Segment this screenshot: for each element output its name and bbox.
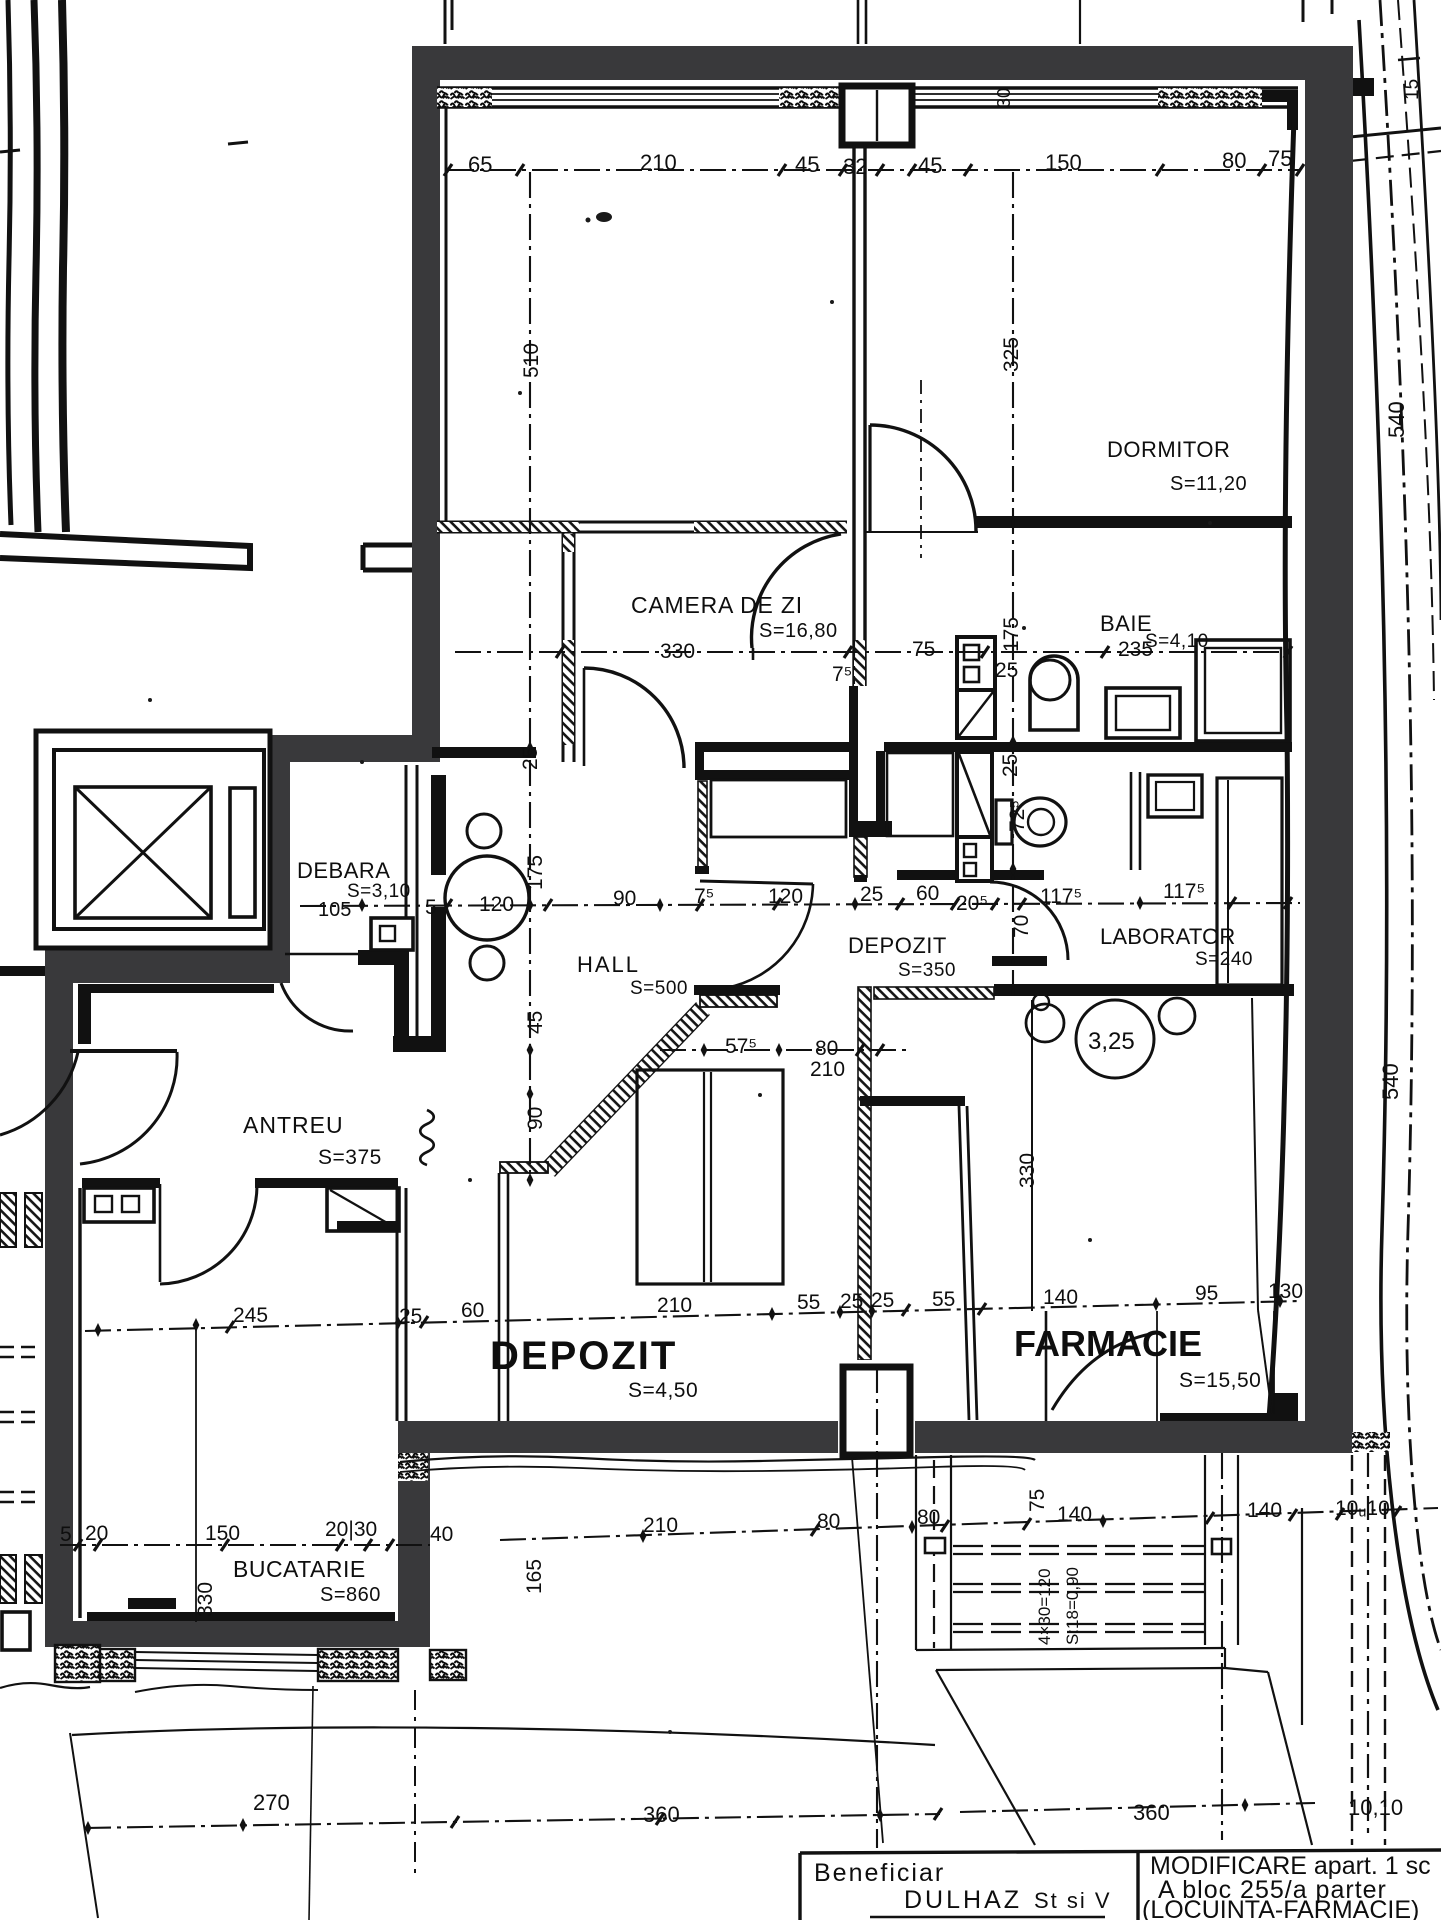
svg-text:S:18=0,90: S:18=0,90 [1063, 1567, 1082, 1645]
svg-text:40: 40 [430, 1523, 453, 1546]
svg-text:S=4,50: S=4,50 [628, 1379, 698, 1402]
svg-text:ANTREU: ANTREU [243, 1112, 344, 1138]
svg-text:25: 25 [860, 883, 883, 906]
svg-text:DEBARA: DEBARA [297, 858, 390, 883]
svg-text:DEPOZIT: DEPOZIT [490, 1334, 677, 1378]
svg-text:65: 65 [468, 152, 492, 177]
svg-text:540: 540 [1378, 1063, 1403, 1100]
svg-text:140: 140 [1247, 1499, 1282, 1522]
svg-text:75: 75 [1268, 146, 1292, 171]
svg-text:80: 80 [917, 1506, 940, 1529]
svg-text:FARMACIE: FARMACIE [1014, 1323, 1202, 1364]
svg-text:80: 80 [817, 1510, 840, 1533]
svg-text:5: 5 [60, 1523, 72, 1546]
svg-text:360: 360 [1133, 1800, 1170, 1825]
svg-text:75: 75 [912, 638, 935, 661]
svg-text:20|30: 20|30 [325, 1518, 377, 1541]
svg-text:25: 25 [519, 747, 542, 770]
svg-text:S=4,10: S=4,10 [1145, 631, 1209, 652]
svg-text:S=350: S=350 [898, 960, 956, 981]
svg-text:57⁵: 57⁵ [725, 1035, 757, 1058]
svg-text:S=11,20: S=11,20 [1170, 473, 1247, 495]
svg-text:S=16,80: S=16,80 [759, 620, 838, 642]
svg-text:St si V: St si V [1034, 1888, 1112, 1913]
svg-text:32: 32 [843, 154, 867, 179]
svg-text:330: 330 [660, 640, 695, 663]
svg-text:360: 360 [643, 1802, 680, 1827]
svg-text:90: 90 [524, 1107, 547, 1130]
svg-text:45: 45 [795, 152, 819, 177]
svg-text:175: 175 [524, 855, 547, 890]
svg-text:10ᵤ10: 10ᵤ10 [1335, 1497, 1390, 1520]
svg-text:S=240: S=240 [1195, 949, 1253, 970]
svg-text:25: 25 [999, 754, 1022, 777]
svg-text:S=500: S=500 [630, 978, 688, 999]
svg-text:235: 235 [1118, 638, 1153, 661]
svg-text:330: 330 [1016, 1153, 1039, 1188]
svg-text:95: 95 [1195, 1282, 1218, 1305]
svg-text:165: 165 [523, 1559, 546, 1594]
svg-text:Beneficiar: Beneficiar [814, 1859, 945, 1887]
svg-text:DEPOZIT: DEPOZIT [848, 933, 947, 958]
svg-text:7⁵: 7⁵ [832, 663, 852, 686]
svg-text:20⁵: 20⁵ [956, 892, 988, 915]
svg-text:210: 210 [640, 150, 677, 175]
svg-text:150: 150 [1045, 150, 1082, 175]
svg-text:80: 80 [1222, 148, 1246, 173]
svg-text:60: 60 [461, 1299, 484, 1322]
svg-text:117⁵: 117⁵ [1163, 880, 1205, 903]
svg-text:25: 25 [399, 1305, 422, 1328]
svg-text:CAMERA DE ZI: CAMERA DE ZI [631, 592, 803, 618]
svg-text:HALL: HALL [577, 952, 640, 977]
svg-text:S=3,10: S=3,10 [347, 881, 411, 902]
svg-text:(LOCUINTA-FARMACIE): (LOCUINTA-FARMACIE) [1142, 1896, 1419, 1920]
svg-text:210: 210 [657, 1294, 692, 1317]
svg-text:3,25: 3,25 [1088, 1028, 1135, 1055]
svg-text:DORMITOR: DORMITOR [1107, 437, 1230, 462]
svg-text:7⁵: 7⁵ [694, 885, 714, 908]
svg-text:270: 270 [253, 1790, 290, 1815]
svg-text:10,10: 10,10 [1348, 1795, 1403, 1820]
svg-text:70: 70 [1010, 915, 1033, 938]
svg-text:140: 140 [1043, 1286, 1078, 1309]
svg-text:BUCATARIE: BUCATARIE [233, 1556, 366, 1582]
svg-text:4×30=120: 4×30=120 [1035, 1568, 1054, 1645]
svg-text:325: 325 [1000, 337, 1023, 372]
svg-text:90: 90 [613, 887, 636, 910]
svg-text:25: 25 [840, 1290, 863, 1313]
svg-text:510: 510 [520, 343, 543, 378]
svg-text:120: 120 [768, 885, 803, 908]
svg-text:210: 210 [643, 1514, 678, 1537]
svg-text:S=860: S=860 [320, 1584, 381, 1606]
svg-text:55: 55 [932, 1288, 955, 1311]
svg-text:15: 15 [1402, 79, 1423, 100]
svg-text:LABORATOR: LABORATOR [1100, 924, 1235, 949]
svg-text:S=15,50: S=15,50 [1179, 1369, 1261, 1392]
svg-text:DULHAZ: DULHAZ [904, 1886, 1022, 1914]
svg-text:117⁵: 117⁵ [1040, 885, 1082, 908]
svg-text:150: 150 [205, 1522, 240, 1545]
svg-text:5: 5 [425, 896, 437, 919]
svg-text:80: 80 [815, 1037, 838, 1060]
svg-text:120: 120 [479, 893, 514, 916]
svg-text:55: 55 [797, 1291, 820, 1314]
svg-text:60: 60 [916, 882, 939, 905]
svg-text:S=375: S=375 [318, 1146, 382, 1169]
svg-text:175: 175 [1000, 617, 1023, 652]
svg-text:20: 20 [85, 1522, 108, 1545]
svg-text:45: 45 [918, 153, 942, 178]
svg-text:105: 105 [318, 899, 351, 921]
svg-text:330: 330 [194, 1582, 217, 1617]
svg-text:140: 140 [1057, 1503, 1092, 1526]
svg-text:25: 25 [871, 1289, 894, 1312]
svg-text:210: 210 [810, 1058, 845, 1081]
svg-text:30: 30 [994, 88, 1014, 108]
svg-text:72⁵: 72⁵ [1006, 800, 1029, 832]
svg-text:25: 25 [995, 659, 1018, 682]
svg-text:75: 75 [1026, 1489, 1049, 1512]
svg-text:540: 540 [1384, 401, 1409, 438]
svg-text:45: 45 [524, 1011, 547, 1034]
svg-text:245: 245 [233, 1304, 268, 1327]
svg-text:130: 130 [1268, 1280, 1303, 1303]
